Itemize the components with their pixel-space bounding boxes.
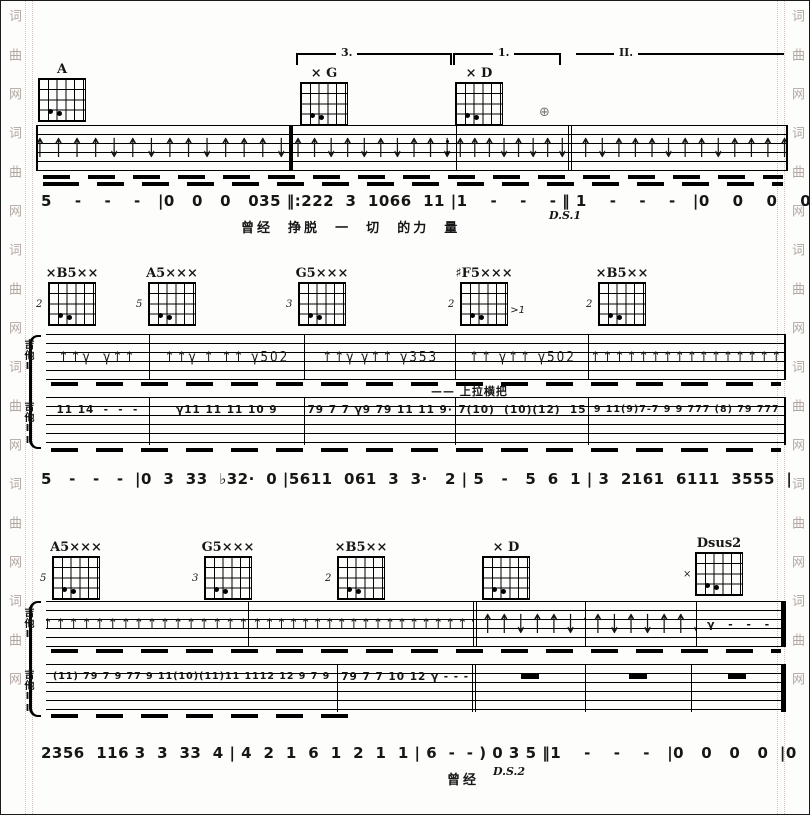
chord-note: >1 — [510, 305, 525, 316]
measure: ↑↑↑↑↑↓↑↓↑↑↓↑↑↑↓↑ — [38, 125, 293, 171]
measure: ↑↑↑↑↑↑↑↑↑↑↑↑↑↑↑↑ — [46, 601, 249, 647]
chord-grid: 2 — [598, 282, 646, 326]
chord-diagram-b5: ×B5×× 2 — [41, 267, 103, 326]
tab-notes: ↑↑ γ↑↑ γ502 — [469, 334, 576, 380]
chord-label: G5××× — [291, 267, 353, 282]
chord-grid: 3 — [298, 282, 346, 326]
lyrics-line-1: 曾经 挣脱 一 切 的力 量 — [241, 217, 460, 236]
strum-arrows: ↑↑↑↑↑↓↑↓↑↑↓↑↑↑↓↑ — [38, 125, 293, 171]
chord-grid: × — [695, 552, 743, 596]
measure-whole-rest — [476, 664, 585, 712]
guitar1-label: 吉他I — [21, 339, 33, 373]
strum-arrows: ↑↑↑↑↓↑↓↑↓↑ — [457, 125, 572, 171]
jianpu-line-3: 2356 116 3 3 33 4 | 4 2 1 6 1 2 1 1 | 6 … — [41, 743, 789, 763]
tab-notes: ↑↑γ γ↑↑ — [58, 334, 136, 380]
fret-number: 2 — [448, 299, 454, 310]
strum-arrows: ↑↑↑↓↑↓↑↓↑↑↓↑ — [293, 125, 457, 171]
chord-grid — [482, 556, 530, 600]
tab-notes: ↑↑γ γ↑↑ γ353 — [322, 334, 438, 380]
chord-label: ×B5×× — [591, 267, 653, 282]
strum-arrows: ↑↑↑↓↑↑↓↑ — [477, 601, 586, 647]
measure-whole-rest — [586, 664, 693, 712]
measure: 9 11(9)7-7 9 9 777 (8) 79 777 — [589, 397, 786, 445]
volta-bracket-3: 3. — [296, 53, 452, 65]
chord-grid — [38, 78, 86, 122]
chord-label: A — [31, 63, 93, 78]
chord-label: ×B5×× — [330, 541, 392, 556]
beam-strip — [43, 182, 783, 186]
jianpu-line-1: 5 - - - |0 0 0 035 ‖:222 3 1066 11 |1 - … — [41, 191, 789, 211]
beam-strip — [51, 714, 351, 718]
measure: ↑↑γ γ↑↑ — [46, 334, 150, 380]
chord-diagram-g5: G5××× 3 — [291, 267, 353, 326]
strum-arrows: ↑↑↑↑↑↑↑↑↑↑↑↑↑↑↑↑↑↑↑↑ — [249, 601, 477, 647]
chord-label: ♯F5××× — [453, 267, 515, 282]
measure: ↑↑↑↑↓↑↓↑↓↑ — [457, 125, 572, 171]
chord-grid — [300, 82, 348, 126]
chord-label: A5××× — [45, 541, 107, 556]
volta-label: II. — [614, 46, 638, 59]
strum-arrows: ↑↑↑↓↑↑↑↓↑↑↓↑↑↑↑↓ — [572, 125, 788, 171]
measure: ↑↑γ ↑ ↑↑ γ502 — [150, 334, 305, 380]
chord-label: ×B5×× — [41, 267, 103, 282]
volta-bracket-2: II. — [576, 53, 784, 65]
fret-number: 3 — [192, 573, 198, 584]
tab-numbers: 79 7 7 10 12 γ - - - — [341, 671, 469, 683]
fret-number: 2 — [325, 573, 331, 584]
jianpu-line-2: 5 - - - |0 3 33 ♭32· 0 |5611 061 3 3· 2 … — [41, 469, 789, 489]
strum-arrows: ↑↑↓↑↓↑↑↓ — [586, 601, 697, 647]
chord-grid: 2 — [337, 556, 385, 600]
chord-diagram-d: × D — [448, 67, 510, 126]
chord-diagram-a5: A5××× 5 — [141, 267, 203, 326]
fret-number: 2 — [36, 299, 42, 310]
measure: (11) 79 7 9 77 9 11(10)(11)11 1112 12 9 … — [46, 664, 338, 712]
chord-grid: 5 — [52, 556, 100, 600]
beam-strip — [51, 448, 781, 452]
watermark-right: 词曲网词曲网词曲网词曲网词曲网词曲网 — [787, 9, 806, 711]
tab-notes: ↑↑γ ↑ ↑↑ γ502 — [164, 334, 289, 380]
chord-grid — [455, 82, 503, 126]
chord-grid: 2 >1 — [460, 282, 508, 326]
chord-diagram-a5: A5××× 5 — [45, 541, 107, 600]
measure: ↑↑ γ↑↑ γ502 — [456, 334, 589, 380]
chord-label: A5××× — [141, 267, 203, 282]
fret-number: 3 — [286, 299, 292, 310]
chord-grid: 2 — [48, 282, 96, 326]
ds-marker-1: D.S.1 — [549, 209, 581, 222]
chord-diagram-a: A — [31, 63, 93, 122]
measure: ↑↑↑↓↑↑↓↑ — [477, 601, 586, 647]
chord-diagram-dsus2: Dsus2 × — [688, 537, 750, 596]
chord-diagram-b5: ×B5×× 2 — [591, 267, 653, 326]
strum-staff-1: ↑↑↑↑↑↓↑↓↑↑↓↑↑↑↓↑ ↑↑↑↓↑↓↑↓↑↑↓↑ ↑↑↑↑↓↑↓↑↓↑… — [36, 125, 788, 171]
tab-numbers: γ11 11 11 10 9 — [176, 404, 278, 416]
chord-diagram-d: × D — [475, 541, 537, 600]
guitar2-label: 吉他II — [21, 669, 33, 715]
chord-grid: 5 — [148, 282, 196, 326]
guitar1-staff-3: ↑↑↑↑↑↑↑↑↑↑↑↑↑↑↑↑ ↑↑↑↑↑↑↑↑↑↑↑↑↑↑↑↑↑↑↑↑ ↑↑… — [46, 601, 786, 647]
volta-label: 3. — [336, 46, 357, 59]
beam-strip — [51, 382, 781, 386]
tab-numbers: 9 11(9)7-7 9 9 777 (8) 79 777 — [594, 404, 780, 415]
beam-strip — [51, 649, 781, 653]
measure: γ - - - — [697, 601, 786, 647]
measure: 7(10) (10)(12) 15 — [456, 397, 589, 445]
chord-label: Dsus2 — [688, 537, 750, 552]
tab-numbers: 11 14 - - - — [56, 404, 138, 416]
lyrics-line-3: 曾经 — [447, 769, 479, 788]
fret-number: 5 — [136, 299, 142, 310]
measure: ↑↑↓↑↓↑↑↓ — [586, 601, 697, 647]
strum-arrows: ↑↑↑↑↑↑↑↑↑↑↑↑↑↑↑↑ — [46, 601, 249, 647]
chord-diagram-g5: G5××× 3 — [197, 541, 259, 600]
tab-numbers: (11) 79 7 9 77 9 11(10)(11)11 1112 12 9 … — [53, 671, 330, 682]
rest-marks: γ - - - — [707, 618, 771, 631]
guitar1-staff-2: ↑↑γ γ↑↑ ↑↑γ ↑ ↑↑ γ502 ↑↑γ γ↑↑ γ353 ↑↑ γ↑… — [46, 334, 786, 380]
chord-grid: 3 — [204, 556, 252, 600]
chord-label: G5××× — [197, 541, 259, 556]
fret-number: 5 — [40, 573, 46, 584]
volta-label: 1. — [493, 46, 514, 59]
chord-diagram-g: × G — [293, 67, 355, 126]
chord-diagram-b5: ×B5×× 2 — [330, 541, 392, 600]
sheet-music-page: 词曲网词曲网词曲网词曲网词曲网词曲网 词曲网词曲网词曲网词曲网词曲网词曲网 3.… — [0, 0, 810, 815]
measure: ↑↑γ γ↑↑ γ353 — [305, 334, 456, 380]
measure: ↑↑↑↑↑↑↑↑↑↑↑↑↑↑↑↑ — [589, 334, 786, 380]
chord-label: × D — [475, 541, 537, 556]
tab-numbers: 79 7 7 γ9 79 11 11 9· — [307, 404, 452, 416]
measure: 79 7 7 γ9 79 11 11 9· — [305, 397, 456, 445]
chord-label: × D — [448, 67, 510, 82]
ds-marker-2: D.S.2 — [493, 765, 525, 778]
fret-number: × — [683, 569, 691, 580]
measure: 79 7 7 10 12 γ - - - — [338, 664, 476, 712]
coda-icon: ⊕ — [539, 105, 550, 120]
measure: ↑↑↑↓↑↑↑↓↑↑↓↑↑↑↑↓ — [572, 125, 788, 171]
chord-label: × G — [293, 67, 355, 82]
guitar2-staff-3: (11) 79 7 9 77 9 11(10)(11)11 1112 12 9 … — [46, 664, 786, 712]
guitar2-label: 吉他II — [21, 401, 33, 447]
tab-notes: ↑↑↑↑↑↑↑↑↑↑↑↑↑↑↑↑ — [590, 334, 783, 380]
tab-numbers: 7(10) (10)(12) 15 — [458, 404, 586, 416]
beam-strip — [43, 175, 783, 179]
chord-diagram-fsharp5: ♯F5××× 2 >1 — [453, 267, 515, 326]
guitar1-label: 吉他I — [21, 607, 33, 641]
volta-bracket-1: 1. — [453, 53, 561, 65]
measure: ↑↑↑↓↑↓↑↓↑↑↓↑ — [293, 125, 457, 171]
measure-whole-rest — [692, 664, 786, 712]
fret-number: 2 — [586, 299, 592, 310]
measure: ↑↑↑↑↑↑↑↑↑↑↑↑↑↑↑↑↑↑↑↑ — [249, 601, 477, 647]
guitar2-staff-2: 11 14 - - - γ11 11 11 10 9 79 7 7 γ9 79 … — [46, 397, 786, 445]
measure: 11 14 - - - — [46, 397, 150, 445]
measure: γ11 11 11 10 9 — [150, 397, 305, 445]
